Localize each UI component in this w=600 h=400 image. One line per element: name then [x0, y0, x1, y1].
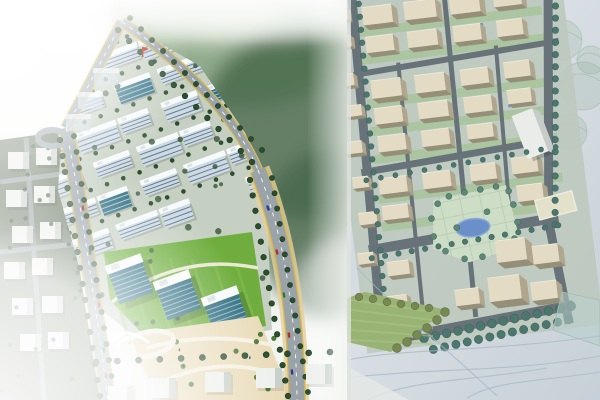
model-panel	[347, 0, 600, 400]
aerial-rendering-illustration	[0, 0, 347, 400]
fog-overlay	[0, 0, 347, 46]
composite-image	[0, 0, 600, 400]
fog-overlay	[0, 0, 347, 400]
edge-fade	[307, 0, 347, 400]
scale-model-illustration	[347, 0, 600, 400]
photo-haze	[347, 0, 600, 400]
render-panel	[0, 0, 347, 400]
